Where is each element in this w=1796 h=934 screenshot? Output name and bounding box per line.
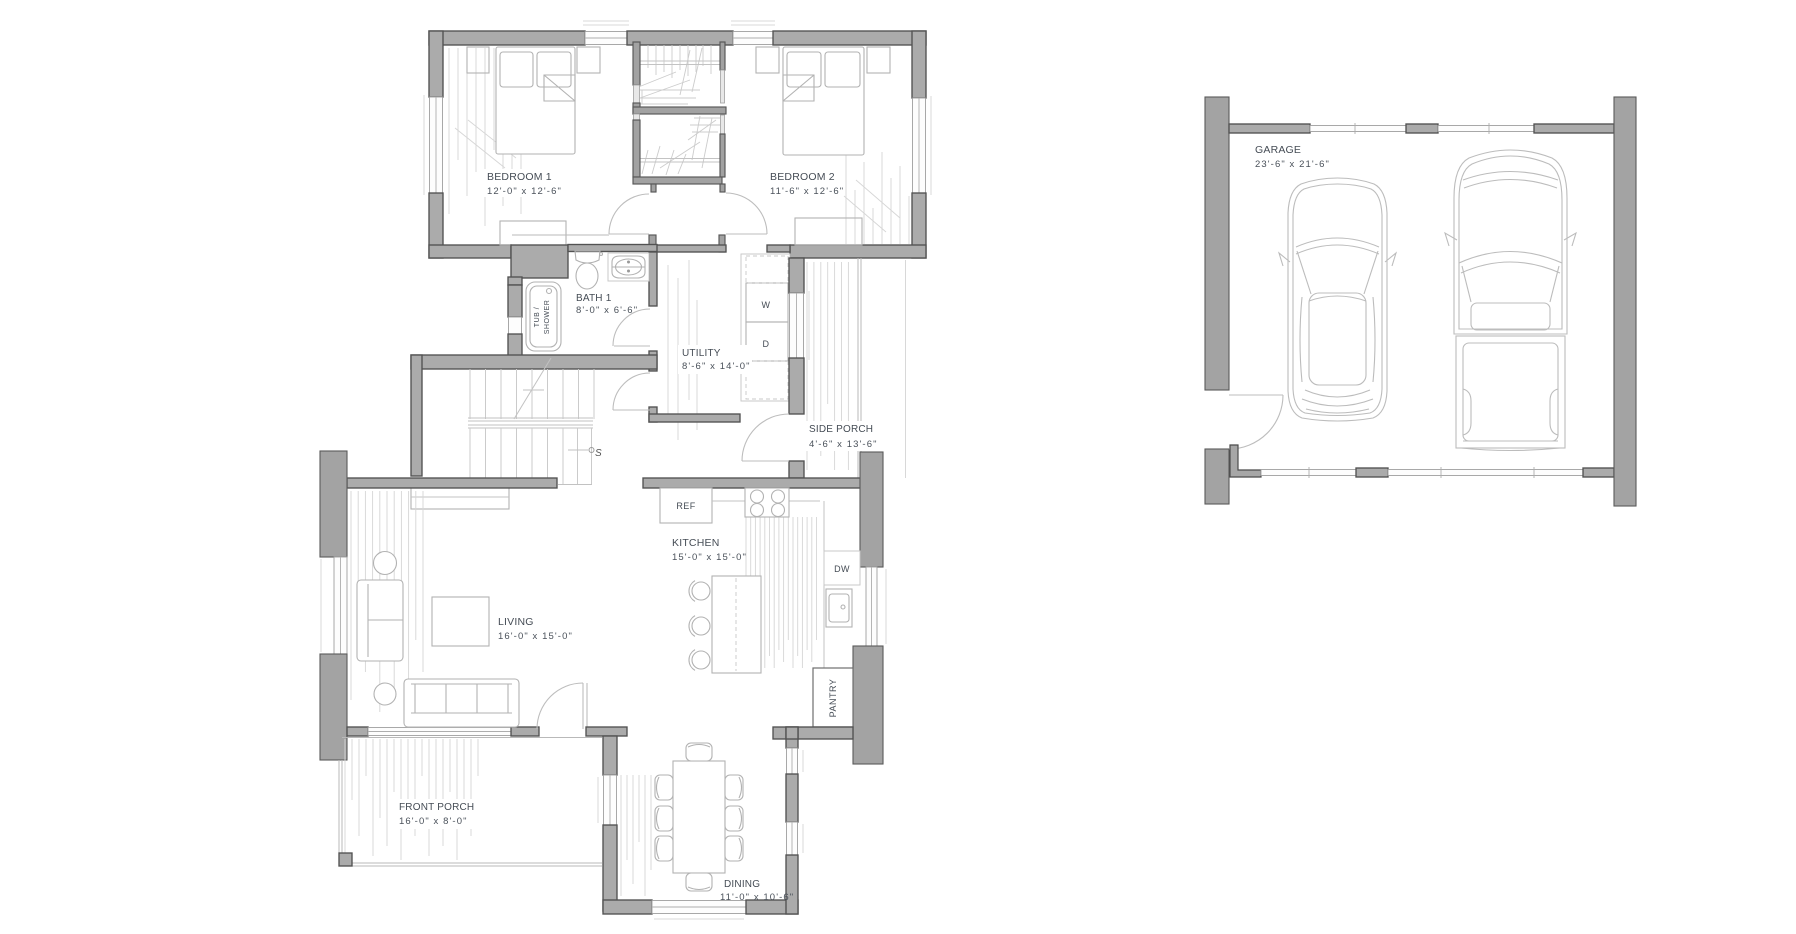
svg-text:BATH 1: BATH 1	[576, 293, 612, 304]
svg-text:8'-0" x 6'-6": 8'-0" x 6'-6"	[576, 305, 638, 316]
svg-text:W: W	[762, 300, 771, 310]
svg-text:SIDE PORCH: SIDE PORCH	[809, 424, 873, 435]
svg-text:SHOWER: SHOWER	[544, 300, 551, 335]
svg-text:GARAGE: GARAGE	[1255, 144, 1301, 156]
svg-text:16'-0" x 15'-0": 16'-0" x 15'-0"	[498, 631, 573, 642]
svg-text:REF: REF	[676, 501, 695, 511]
svg-text:S: S	[595, 448, 602, 459]
svg-text:11'-6" x 12'-6": 11'-6" x 12'-6"	[770, 186, 844, 197]
svg-text:FRONT PORCH: FRONT PORCH	[399, 802, 474, 813]
svg-text:PANTRY: PANTRY	[828, 679, 838, 718]
svg-text:4'-6" x 13'-6": 4'-6" x 13'-6"	[809, 439, 878, 450]
svg-text:BEDROOM 2: BEDROOM 2	[770, 171, 835, 183]
svg-text:LIVING: LIVING	[498, 616, 534, 628]
svg-text:8'-6" x 14'-0": 8'-6" x 14'-0"	[682, 361, 751, 372]
svg-text:12'-0" x 12'-6": 12'-0" x 12'-6"	[487, 186, 562, 197]
svg-text:KITCHEN: KITCHEN	[672, 537, 720, 549]
svg-text:TUB /: TUB /	[534, 307, 541, 327]
svg-text:DINING: DINING	[724, 879, 760, 890]
svg-text:15'-0" x 15'-0": 15'-0" x 15'-0"	[672, 552, 747, 563]
svg-text:BEDROOM 1: BEDROOM 1	[487, 171, 552, 183]
svg-text:23'-6" x 21'-6": 23'-6" x 21'-6"	[1255, 159, 1330, 170]
svg-text:UTILITY: UTILITY	[682, 348, 721, 359]
svg-text:16'-0" x 8'-0": 16'-0" x 8'-0"	[399, 816, 468, 827]
svg-text:D: D	[763, 339, 770, 349]
svg-text:DW: DW	[834, 564, 850, 574]
svg-text:11'-0" x 10'-6": 11'-0" x 10'-6"	[720, 892, 794, 903]
